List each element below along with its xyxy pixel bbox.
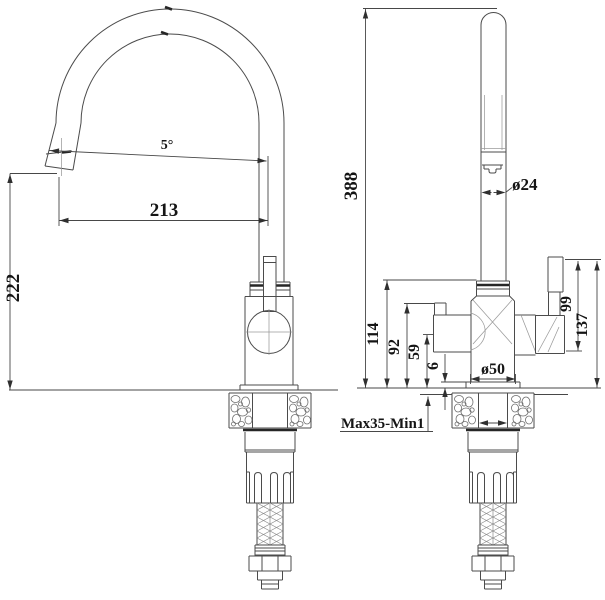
supply-hose-assembly-left bbox=[243, 430, 297, 589]
dim-114-label: 114 bbox=[365, 322, 382, 345]
dim-222-label: 222 bbox=[3, 274, 24, 303]
collar-front bbox=[477, 281, 510, 296]
pullout-rod bbox=[264, 257, 277, 312]
dim-6-label: 6 bbox=[425, 362, 442, 370]
mounting-range-label: Max35-Min1 bbox=[341, 416, 424, 432]
dim-92-label: 92 bbox=[386, 339, 403, 355]
dim-213: 213 bbox=[59, 156, 268, 226]
right-arm bbox=[515, 315, 537, 355]
left-outlet-arm bbox=[434, 303, 472, 352]
dim-59-label: 59 bbox=[406, 344, 423, 360]
dim-137-label: 137 bbox=[574, 313, 591, 337]
spout-arch-outer bbox=[56, 9, 284, 123]
left-view: 222 213 5° bbox=[3, 7, 338, 589]
faucet-body-left bbox=[240, 297, 298, 391]
spout-arch-inner bbox=[81, 34, 259, 123]
dim-59: 59 bbox=[406, 335, 434, 389]
dia24-label: ø24 bbox=[512, 175, 538, 194]
dim-114: 114 bbox=[365, 280, 477, 388]
dim-angle: 5° bbox=[49, 138, 267, 164]
supply-hose-assembly-right bbox=[466, 430, 520, 589]
dim-6: 6 bbox=[425, 354, 466, 410]
aerator bbox=[482, 165, 503, 173]
dim-213-label: 213 bbox=[150, 200, 179, 221]
spout-tip bbox=[45, 123, 81, 176]
dim-dia50: ø50 bbox=[471, 361, 516, 384]
mounting-nut-right bbox=[452, 393, 534, 428]
faucet-drawing-svg: 222 213 5° bbox=[0, 0, 605, 600]
dim-388-label: 388 bbox=[341, 172, 362, 201]
dim-mounting-range: Max35-Min1 bbox=[340, 397, 433, 433]
spout-tube bbox=[481, 13, 506, 282]
dim-222: 222 bbox=[3, 174, 57, 391]
mounting-nut-left bbox=[229, 393, 311, 428]
angle-label: 5° bbox=[161, 138, 174, 153]
dim-dia24: ø24 bbox=[482, 175, 539, 195]
right-view: 388 ø24 114 92 bbox=[340, 9, 601, 590]
technical-drawing: 222 213 5° bbox=[0, 0, 605, 600]
dim-99-label: 99 bbox=[558, 296, 575, 312]
dia50-label: ø50 bbox=[481, 361, 505, 378]
